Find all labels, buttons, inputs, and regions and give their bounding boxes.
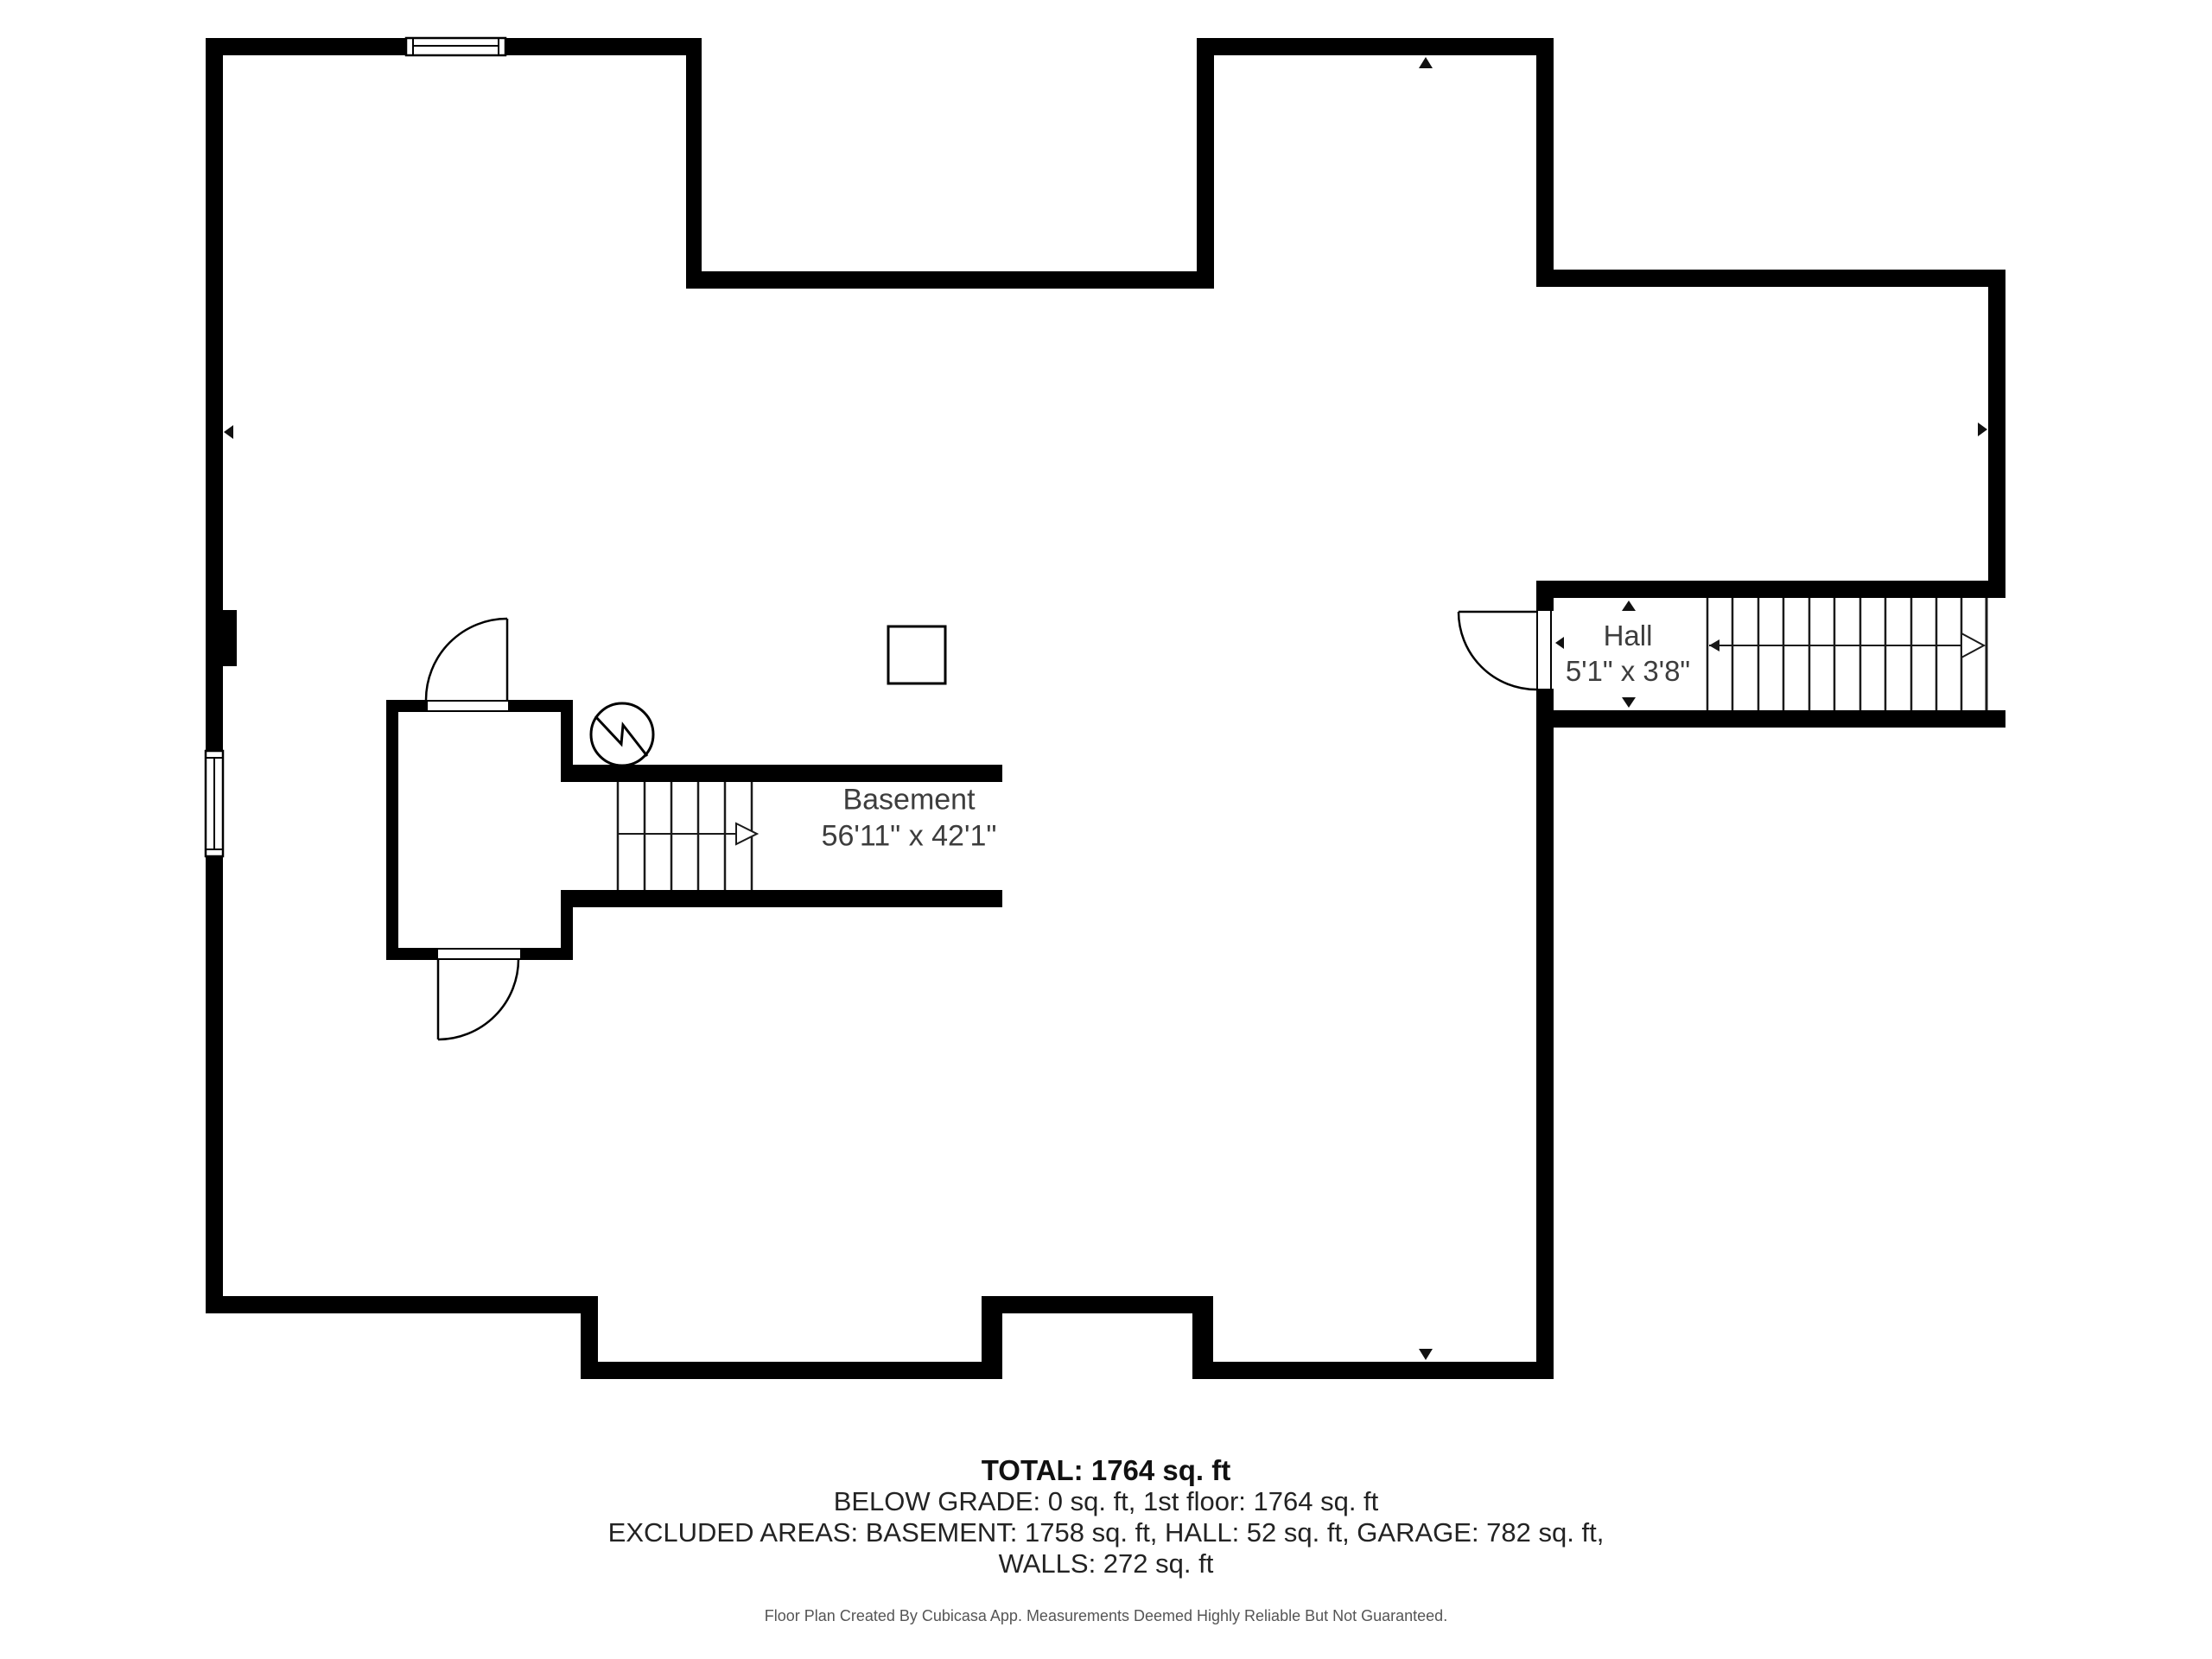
area-summary: TOTAL: 1764 sq. ft BELOW GRADE: 0 sq. ft…: [0, 1455, 2212, 1580]
chimney-stub-icon: [223, 610, 237, 666]
door-swing-icon: [426, 619, 508, 711]
stair-direction-arrow-icon: [618, 823, 757, 844]
room-label-basement: Basement: [842, 783, 975, 817]
furnace-circle-bolt-icon: [591, 703, 653, 766]
summary-below-grade: BELOW GRADE: 0 sq. ft, 1st floor: 1764 s…: [0, 1486, 2212, 1517]
floor-plan-canvas: Basement 56'11" x 42'1" Hall 5'1" x 3'8": [0, 0, 2212, 1659]
footer-disclaimer: Floor Plan Created By Cubicasa App. Meas…: [0, 1605, 2212, 1626]
column-post-icon: [888, 626, 945, 683]
door-swing-icon: [1459, 611, 1551, 690]
summary-excluded-areas: EXCLUDED AREAS: BASEMENT: 1758 sq. ft, H…: [0, 1517, 2212, 1548]
room-label-hall: Hall: [1604, 620, 1653, 652]
floor-plan-page: Basement 56'11" x 42'1" Hall 5'1" x 3'8"…: [0, 0, 2212, 1659]
window-icon: [406, 38, 505, 55]
summary-total: TOTAL: 1764 sq. ft: [0, 1455, 2212, 1486]
room-dimensions-hall: 5'1" x 3'8": [1566, 655, 1690, 688]
stair-direction-arrow-icon: [1709, 633, 1984, 658]
summary-walls: WALLS: 272 sq. ft: [0, 1548, 2212, 1580]
stair-treads-icon: [618, 782, 752, 890]
room-dimensions-basement: 56'11" x 42'1": [822, 819, 997, 853]
door-swing-icon: [438, 949, 520, 1039]
floor-plan-symbols-layer: [0, 0, 2212, 1659]
dimension-triangle-icon: [224, 57, 1987, 1360]
window-icon: [206, 751, 223, 856]
dimension-triangle-icon: [1555, 601, 1636, 708]
stair-treads-icon: [1707, 598, 1986, 710]
